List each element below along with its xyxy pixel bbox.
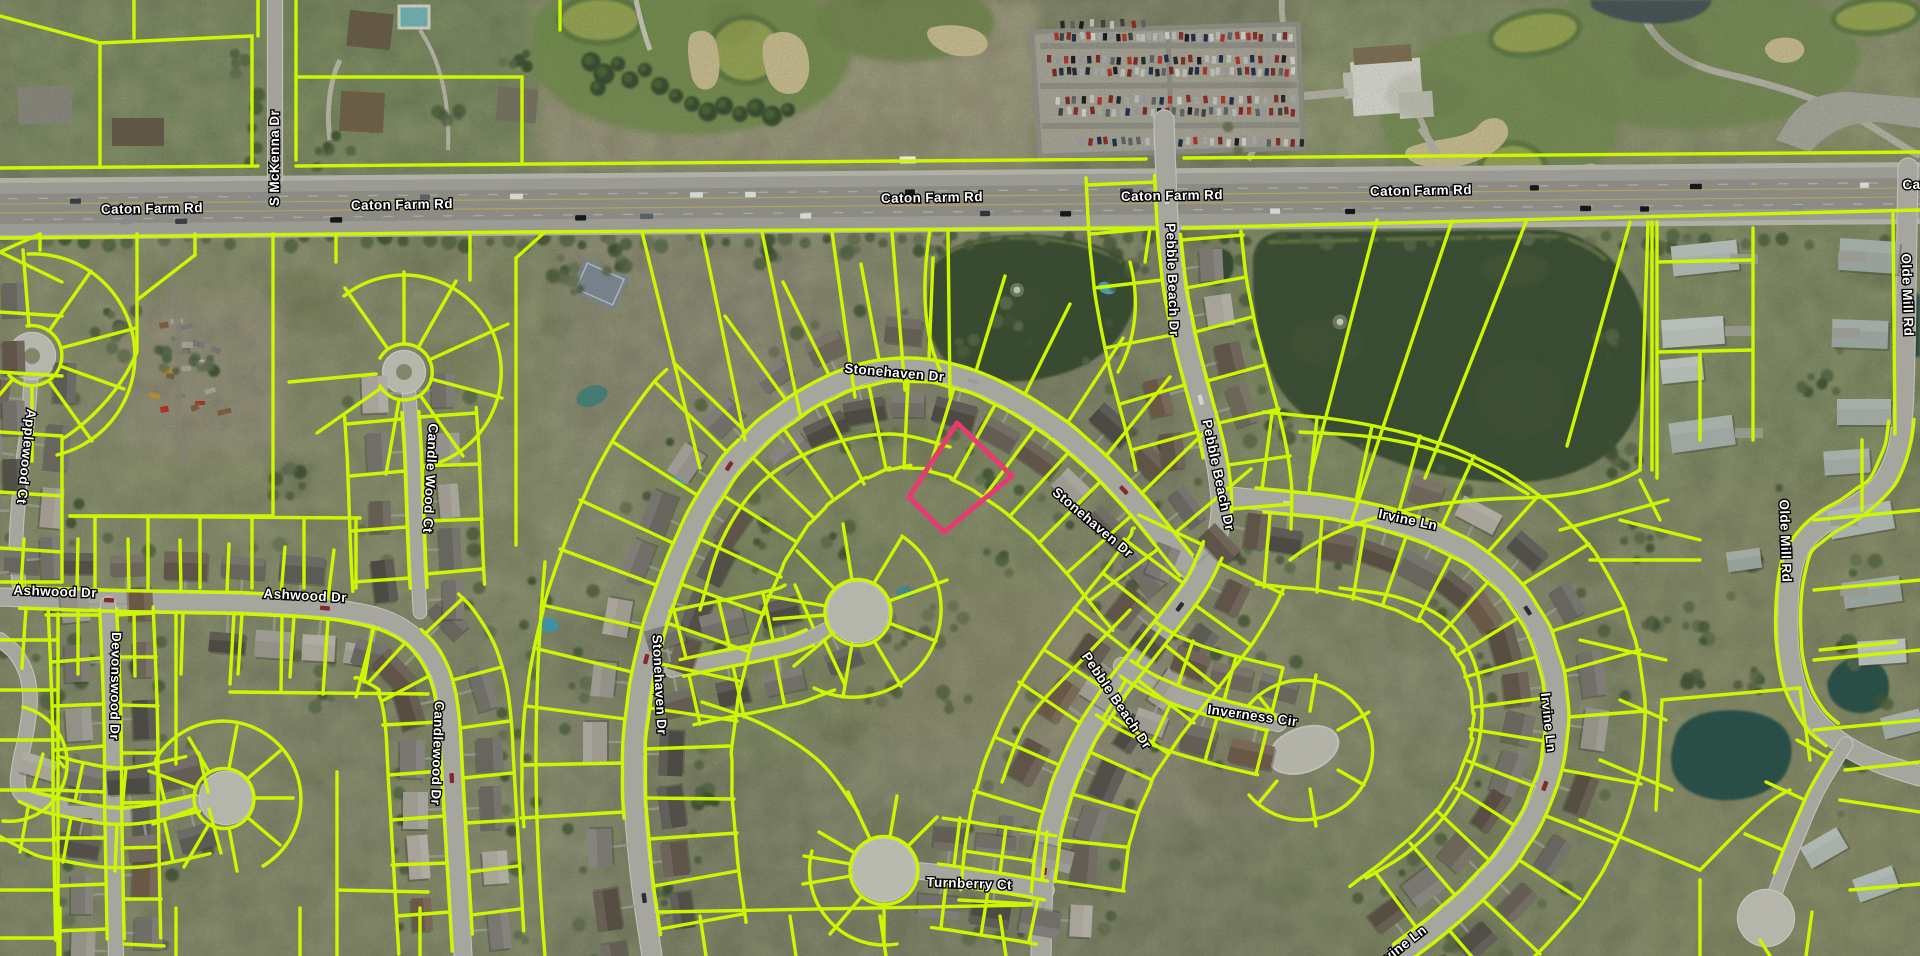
svg-text:Ashwood Dr: Ashwood Dr — [13, 583, 97, 601]
svg-text:Caton Farm Rd: Caton Farm Rd — [881, 189, 983, 206]
svg-text:Turnberry Ct: Turnberry Ct — [926, 875, 1012, 893]
svg-text:Caton Farm Rd: Caton Farm Rd — [351, 196, 453, 213]
svg-text:Devonswood Dr: Devonswood Dr — [107, 632, 124, 741]
svg-text:Caton Farm Rd: Caton Farm Rd — [101, 200, 203, 217]
svg-text:Olde Mill Rd: Olde Mill Rd — [1899, 253, 1917, 336]
svg-text:S McKenna Dr: S McKenna Dr — [267, 109, 282, 206]
svg-text:Cat: Cat — [1902, 177, 1920, 192]
svg-text:Caton Farm Rd: Caton Farm Rd — [1121, 187, 1223, 204]
svg-text:Olde Mill Rd: Olde Mill Rd — [1777, 499, 1795, 582]
svg-text:Caton Farm Rd: Caton Farm Rd — [1370, 182, 1472, 199]
